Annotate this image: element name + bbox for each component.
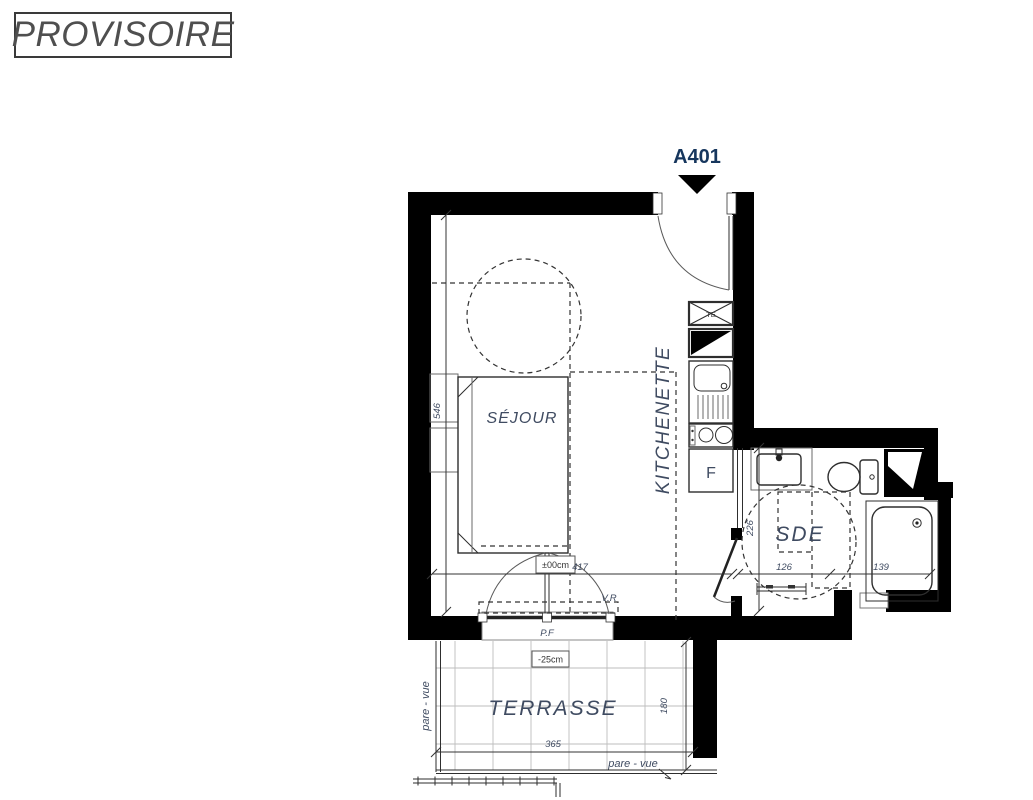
dashed-table-circle [467, 259, 581, 373]
dim-terrace-depth: 180 [659, 697, 670, 714]
window-jamb [478, 613, 487, 622]
dim-sde-width: 126 [776, 562, 793, 573]
wall-corridor [733, 192, 754, 450]
shower-tray [872, 507, 932, 595]
dim-terrace-width: 365 [545, 739, 562, 750]
towel-rail-bracket [766, 585, 773, 589]
shower-tray-outer [866, 501, 938, 601]
shower-drain-icon [915, 521, 918, 524]
level-marker-interior: ±00cm [536, 556, 575, 573]
toilet-tank [860, 460, 878, 494]
wall-bottom-right [613, 616, 852, 640]
dim-line-126-139 [733, 569, 935, 579]
kitchen-sink-unit [689, 361, 733, 423]
window-jamb [606, 613, 615, 622]
wall-terrace-right [693, 640, 717, 758]
pillow-icon [458, 377, 478, 397]
level-terrace-text: -25cm [538, 655, 563, 665]
wall-left [408, 192, 431, 640]
towel-rail [757, 583, 806, 595]
cooktop-controls [690, 426, 695, 445]
dim-sde-depth: 226 [745, 519, 756, 537]
sde-door-stub [731, 596, 742, 618]
entry-door-leaf [729, 216, 733, 290]
control-knob-icon [691, 430, 693, 432]
unit-label: A401 [673, 146, 721, 168]
control-knob-icon [691, 439, 693, 441]
entry-jamb-left [653, 193, 662, 214]
drainboard-lines [698, 395, 728, 419]
entrance-arrow-icon [678, 175, 716, 194]
wall-top [408, 192, 658, 215]
level-interior-text: ±00cm [542, 560, 569, 570]
sink-basin [694, 365, 730, 391]
entry-door [653, 193, 736, 290]
flush-button-icon [870, 475, 874, 479]
bed [458, 377, 568, 553]
terrace-edge [436, 770, 717, 774]
level-marker-terrace: -25cm [532, 651, 569, 667]
toilet-bowl [828, 463, 860, 492]
pillow-icon [458, 533, 478, 553]
roller-shutter-label: V.R [601, 593, 616, 604]
towel-rail-bracket [788, 585, 795, 589]
burner-left-icon [699, 428, 713, 442]
wedge-cabinet-fill [691, 331, 731, 355]
sejour-furniture [430, 374, 568, 553]
dimensions: 417 546 126 139 226 365 180 [427, 210, 935, 775]
room-label-sde: SDE [775, 523, 824, 546]
railing-ticks [418, 777, 554, 786]
wall-bottom-left [408, 616, 482, 640]
wall-pilaster [938, 482, 953, 498]
faucet-icon [776, 455, 782, 461]
terrace: TERRASSE -25cm pare - vue pare - vue [413, 641, 717, 797]
window-door-label: P.F [540, 628, 555, 639]
fridge-label: F [706, 465, 716, 482]
sink-drain-icon [721, 383, 727, 389]
room-label-kitchenette: KITCHENETTE [653, 346, 674, 494]
wall-sde-right-upper [924, 446, 938, 500]
dim-sejour-width: 417 [572, 562, 589, 573]
burner-right-icon [716, 427, 733, 444]
dim-line-365 [431, 747, 698, 757]
screen-label-left: pare - vue [420, 681, 432, 732]
floor-plan-svg: A401 TE [0, 0, 1033, 800]
dim-shower-width: 139 [873, 562, 890, 573]
electrical-box-label: TE [706, 310, 716, 319]
nightstand-2 [430, 428, 458, 472]
room-label-sejour: SÉJOUR [487, 408, 558, 427]
floor-plan-page: { "labels": { "stamp": "PROVISOIRE", "un… [0, 0, 1033, 800]
window-jamb [543, 613, 552, 622]
wall-sde-top [746, 428, 938, 448]
kitchenette-fixtures: TE F [689, 302, 733, 492]
room-label-terrasse: TERRASSE [488, 697, 617, 720]
wall-step [834, 590, 852, 618]
entry-door-swing-arc [658, 216, 729, 290]
screen-label-bottom: pare - vue [607, 758, 658, 770]
partition-sde [738, 448, 743, 528]
entry-jamb-right [727, 193, 736, 214]
dim-sejour-depth: 546 [432, 402, 443, 419]
sde-door-leaf [714, 538, 737, 597]
